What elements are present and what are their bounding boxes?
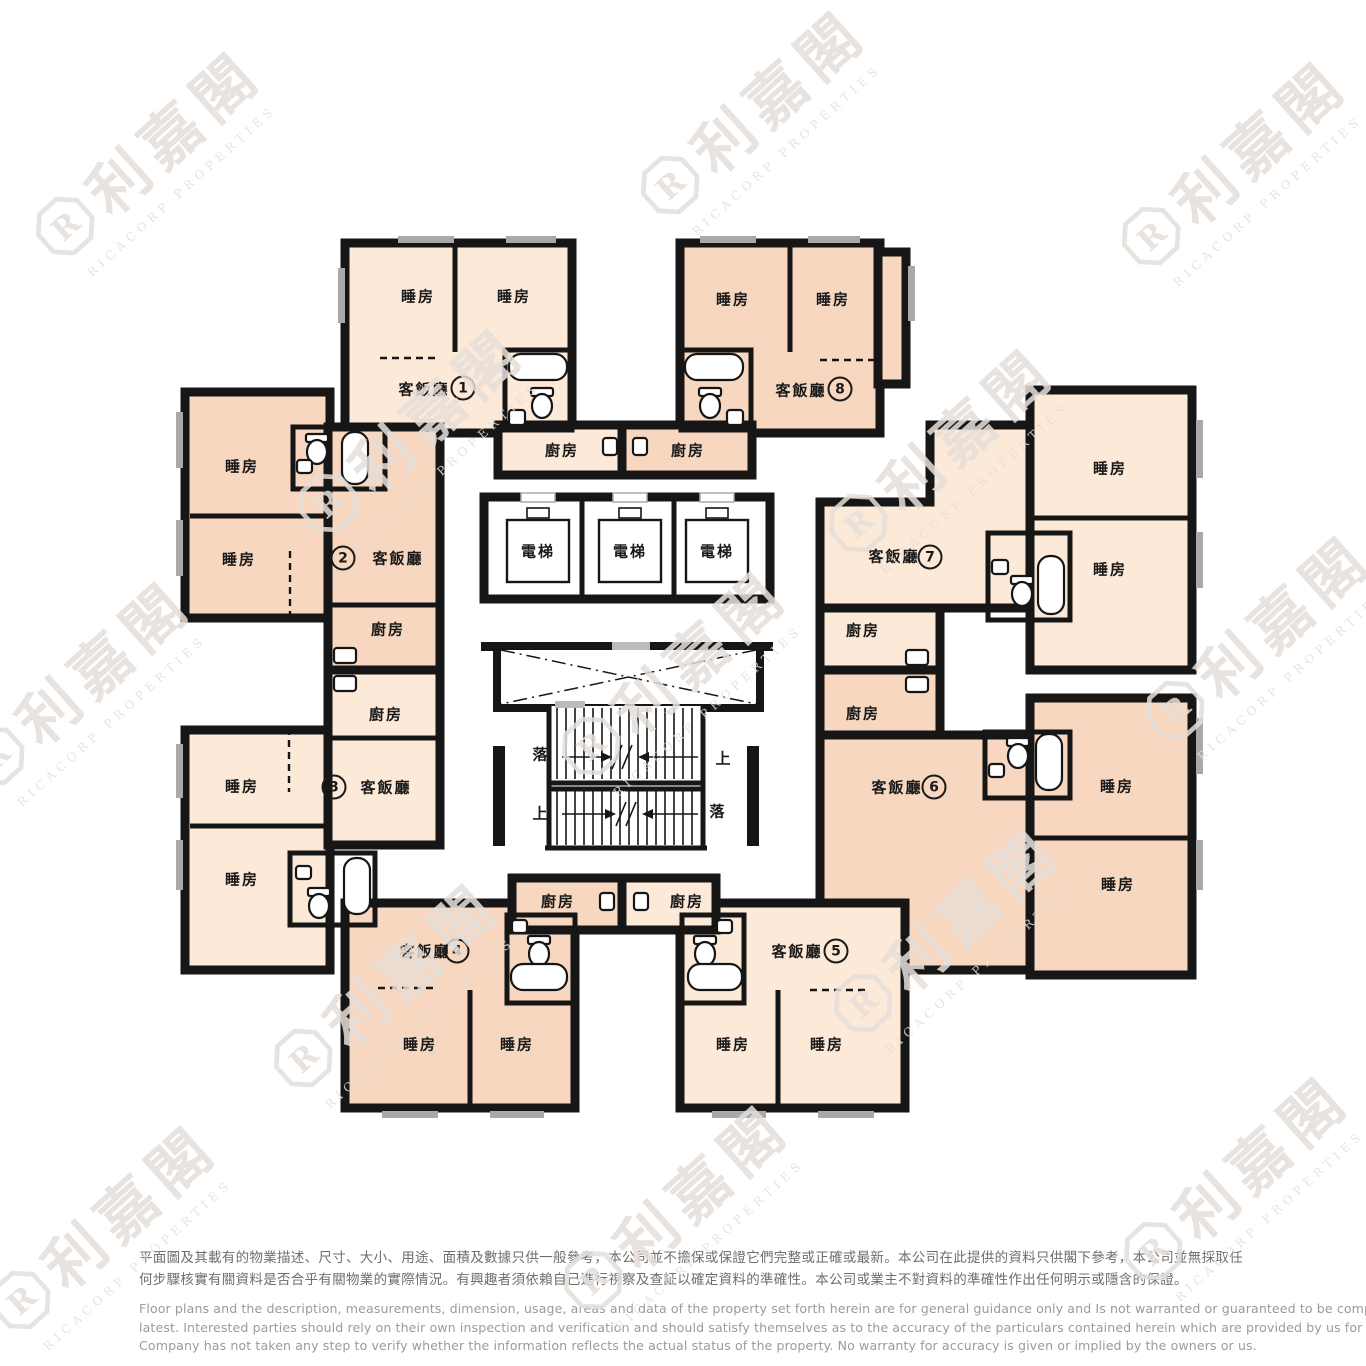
disclaimer-en-line2: latest. Interested parties should rely o… xyxy=(139,1319,1239,1338)
basin xyxy=(297,460,312,473)
bathtub xyxy=(344,858,370,914)
floor-plan-page: 客飯廳1廚房睡房睡房客飯廳2廚房睡房睡房客飯廳3廚房睡房睡房客飯廳4廚房睡房睡房… xyxy=(0,0,1366,1366)
floor-plan xyxy=(0,0,1366,1366)
basin xyxy=(512,920,527,933)
kitchen-sink xyxy=(334,676,356,691)
bathtub xyxy=(509,354,567,380)
basin xyxy=(717,920,732,933)
bathtub xyxy=(1036,734,1062,790)
kitchen-sink xyxy=(600,893,614,910)
disclaimer-english: Floor plans and the description, measure… xyxy=(139,1300,1239,1356)
disclaimer-zh-line1: 平面圖及其載有的物業描述、尺寸、大小、用途、面積及數據只供一般參考，本公司並不擔… xyxy=(139,1247,1239,1269)
bathtub xyxy=(1038,556,1064,614)
stairwell xyxy=(493,701,759,848)
bathtub xyxy=(685,354,743,380)
basin xyxy=(509,410,525,425)
kitchen-sink xyxy=(603,438,617,455)
kitchen-sink xyxy=(906,650,928,665)
basin xyxy=(989,764,1004,777)
basin xyxy=(992,560,1008,574)
kitchen-sink xyxy=(906,677,928,692)
core xyxy=(481,493,773,848)
disclaimer-en-line3: Company has not taken any step to verify… xyxy=(139,1337,1239,1356)
kitchen-sink xyxy=(334,648,356,663)
kitchen-sink xyxy=(634,893,648,910)
basin xyxy=(296,866,311,879)
kitchen-sink xyxy=(633,438,647,455)
disclaimer: 平面圖及其載有的物業描述、尺寸、大小、用途、面積及數據只供一般參考，本公司並不擔… xyxy=(139,1247,1239,1356)
basin xyxy=(727,410,743,425)
disclaimer-en-line1: Floor plans and the description, measure… xyxy=(139,1300,1239,1319)
bathtub xyxy=(511,964,567,990)
bathtub xyxy=(342,432,368,484)
disclaimer-zh-line2: 何步驟核實有關資料是否合乎有關物業的實際情況。有興趣者須依賴自己進行視察及查証以… xyxy=(139,1269,1239,1291)
bathtub xyxy=(688,964,742,990)
